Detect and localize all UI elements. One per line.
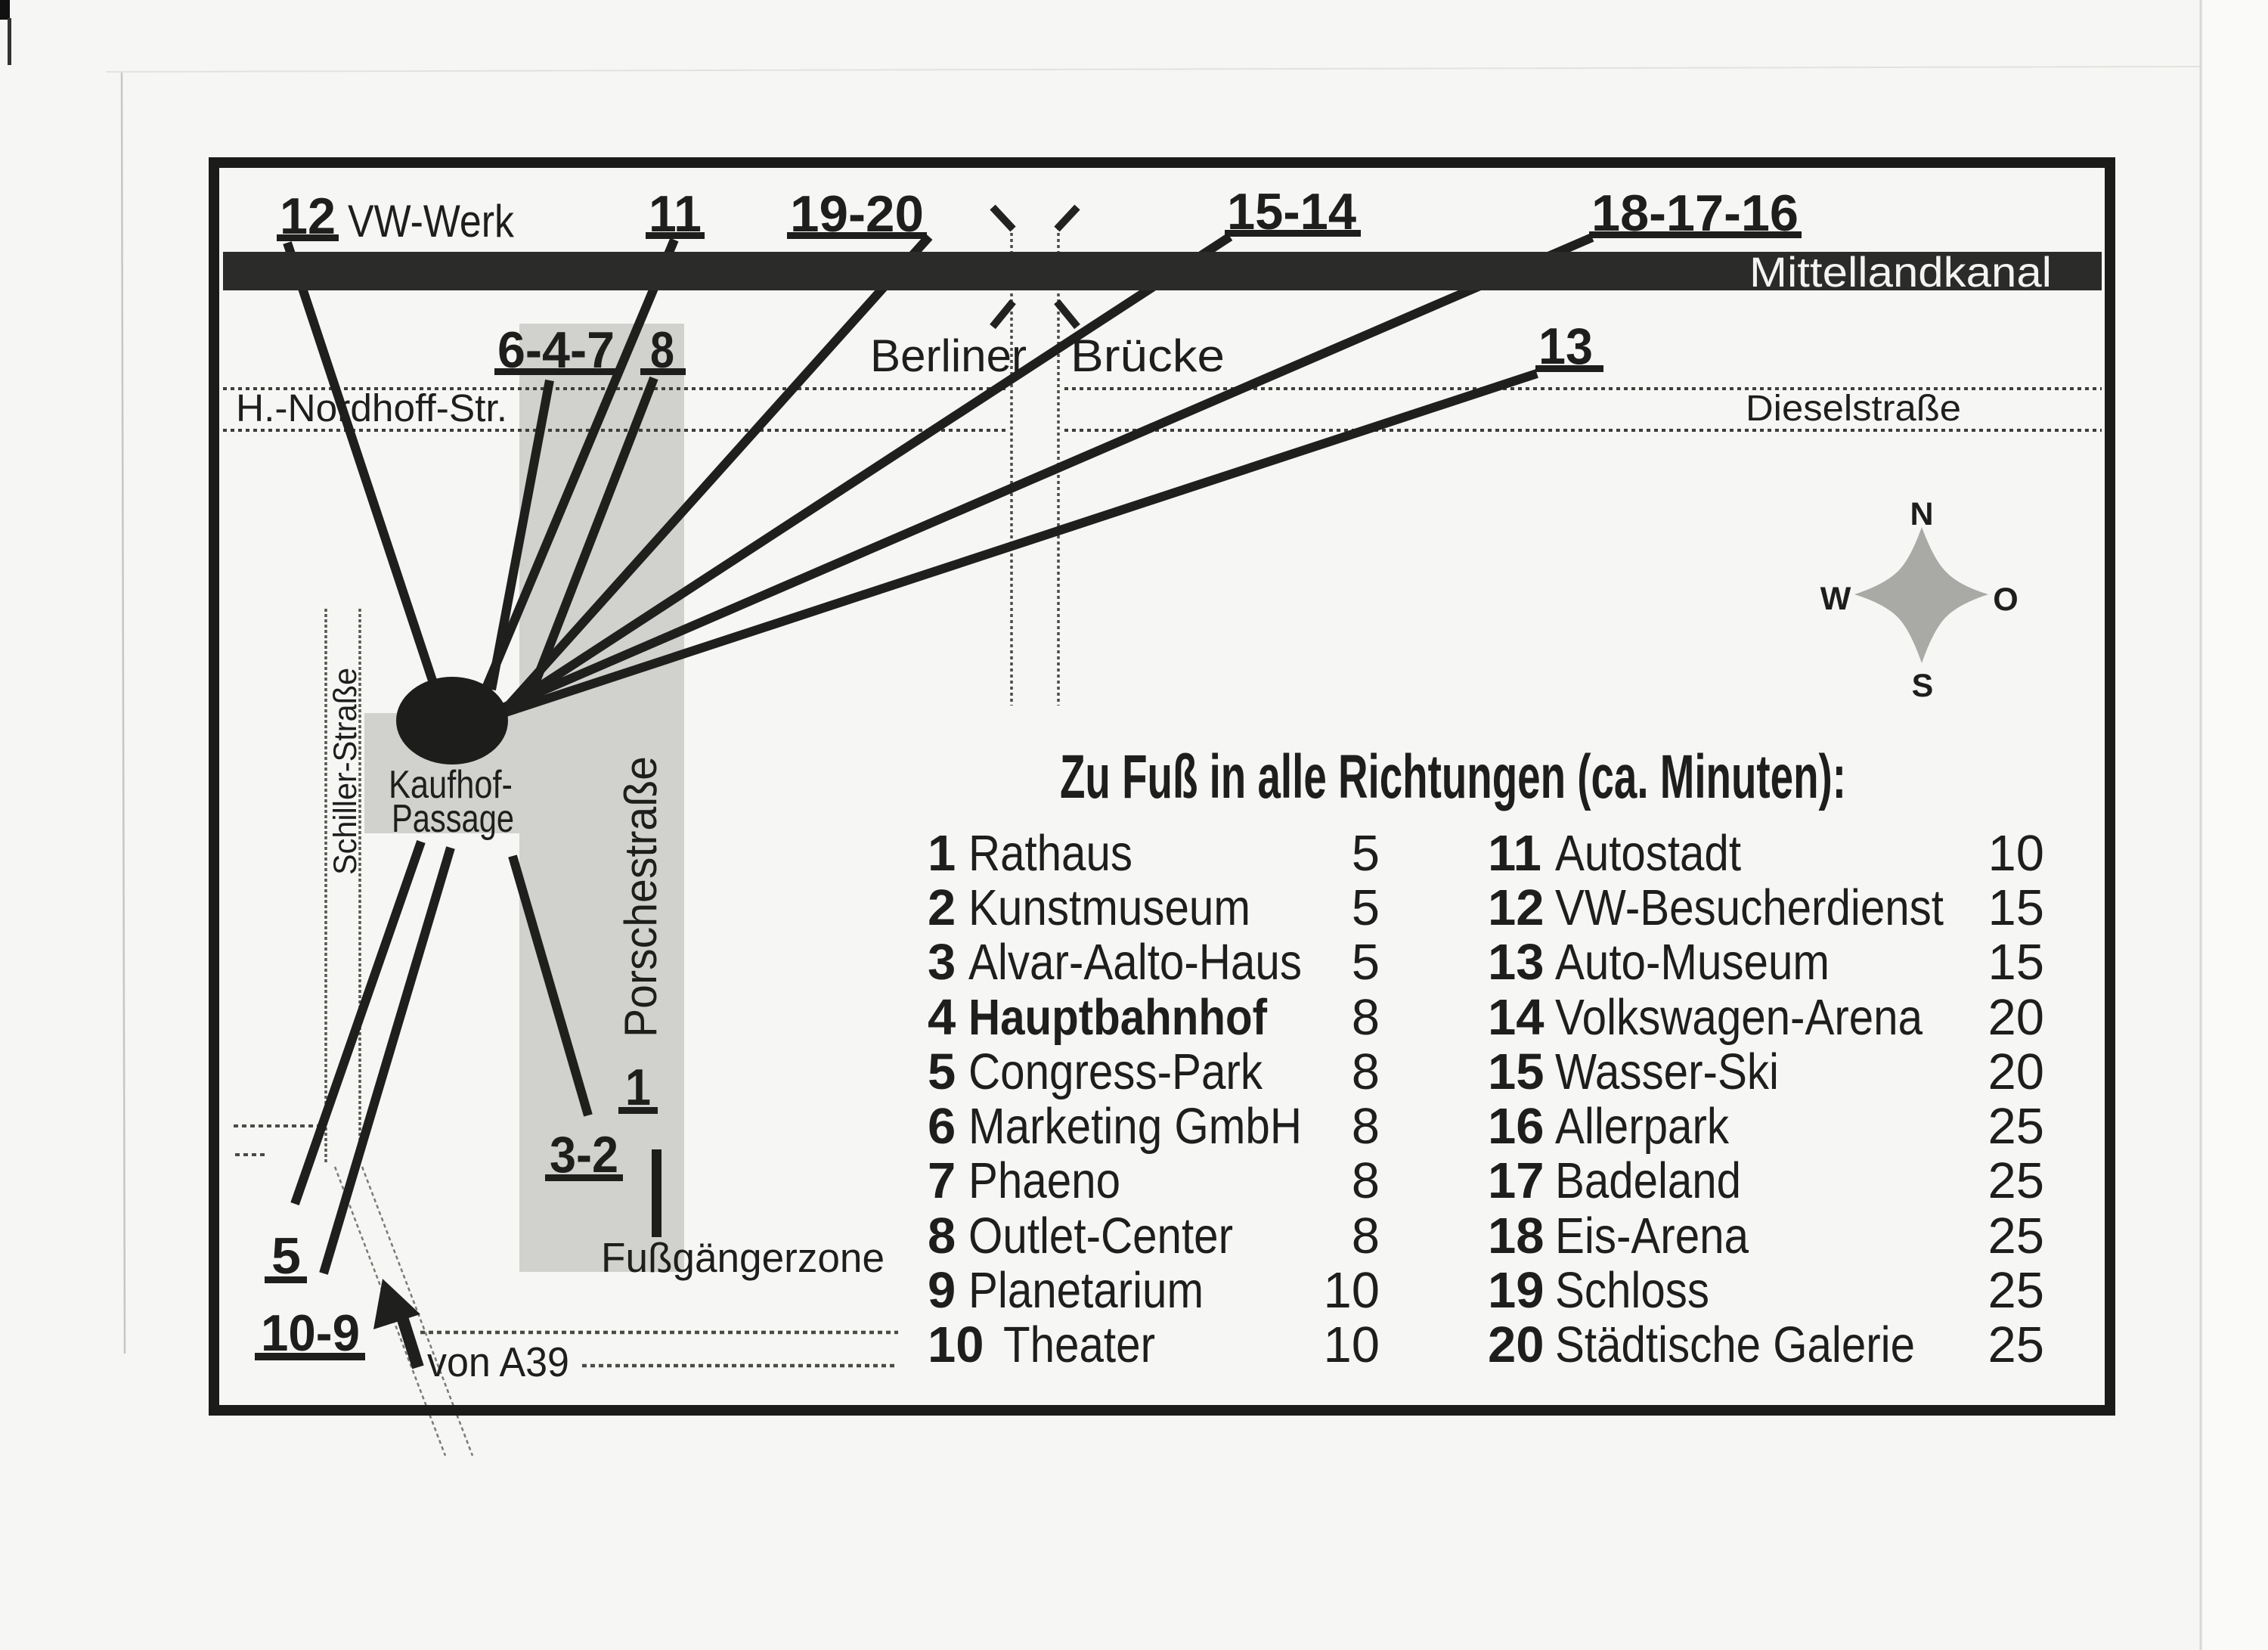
svg-text:15: 15 [1488,1044,1545,1100]
svg-text:5: 5 [1352,879,1380,936]
svg-text:12: 12 [1488,879,1545,936]
svg-text:5: 5 [1352,934,1380,991]
svg-text:Congress-Park: Congress-Park [968,1044,1263,1100]
svg-text:18: 18 [1488,1208,1545,1264]
svg-text:Badeland: Badeland [1555,1152,1741,1209]
svg-text:Schiller-Straße: Schiller-Straße [327,668,364,875]
svg-text:W: W [1820,581,1851,617]
svg-text:von A39: von A39 [427,1338,569,1385]
svg-text:20: 20 [1988,989,2044,1046]
svg-text:8: 8 [1352,1098,1380,1155]
svg-text:6: 6 [928,1098,956,1155]
svg-text:S: S [1912,668,1934,704]
svg-text:Porschestraße: Porschestraße [615,756,666,1037]
svg-text:5: 5 [271,1227,301,1285]
svg-text:10: 10 [1323,1317,1380,1373]
svg-text:Berliner: Berliner [870,330,1027,381]
svg-text:9: 9 [928,1262,956,1319]
svg-text:11: 11 [1488,825,1541,882]
svg-text:Volkswagen-Arena: Volkswagen-Arena [1555,989,1923,1046]
svg-text:17: 17 [1488,1152,1545,1209]
svg-text:20: 20 [1988,1044,2044,1100]
svg-text:1: 1 [928,825,956,882]
svg-text:7: 7 [928,1152,956,1209]
svg-text:10: 10 [1323,1262,1380,1319]
svg-text:15: 15 [1988,934,2044,991]
svg-text:Planetarium: Planetarium [968,1262,1204,1319]
svg-text:Städtische Galerie: Städtische Galerie [1555,1317,1915,1373]
svg-text:Allerpark: Allerpark [1555,1098,1729,1155]
svg-text:Schloss: Schloss [1555,1262,1709,1319]
svg-text:5: 5 [1352,825,1380,882]
svg-text:Rathaus: Rathaus [968,825,1132,882]
svg-text:8: 8 [1352,989,1380,1046]
svg-text:Theater: Theater [1003,1317,1155,1373]
svg-text:2: 2 [928,879,956,936]
svg-text:25: 25 [1988,1317,2044,1373]
svg-text:Outlet-Center: Outlet-Center [968,1208,1233,1264]
svg-text:Alvar-Aalto-Haus: Alvar-Aalto-Haus [968,934,1302,991]
svg-text:25: 25 [1988,1208,2044,1264]
svg-text:Phaeno: Phaeno [968,1152,1120,1209]
svg-text:Marketing GmbH: Marketing GmbH [968,1098,1302,1155]
svg-text:25: 25 [1988,1262,2044,1319]
svg-text:Zu Fuß in alle Richtungen (ca.: Zu Fuß in alle Richtungen (ca. Minuten): [1060,743,1846,811]
svg-text:Hauptbahnhof: Hauptbahnhof [968,989,1268,1046]
svg-text:Wasser-Ski: Wasser-Ski [1555,1044,1779,1100]
svg-text:8: 8 [1352,1152,1380,1209]
svg-text:10: 10 [928,1317,984,1373]
svg-text:4: 4 [928,989,956,1046]
svg-text:3: 3 [928,934,956,991]
svg-text:Dieselstraße: Dieselstraße [1746,389,1961,429]
svg-text:Autostadt: Autostadt [1555,825,1741,882]
svg-text:Passage: Passage [392,797,514,841]
svg-text:VW-Besucherdienst: VW-Besucherdienst [1555,879,1944,936]
svg-text:O: O [1993,582,2018,618]
svg-text:25: 25 [1988,1152,2044,1209]
svg-text:19: 19 [1488,1262,1545,1319]
svg-text:Fußgängerzone: Fußgängerzone [601,1234,885,1281]
svg-text:8: 8 [1352,1044,1380,1100]
svg-text:N: N [1910,496,1933,532]
svg-text:Kunstmuseum: Kunstmuseum [968,879,1250,936]
svg-text:10: 10 [1988,825,2044,882]
svg-text:25: 25 [1988,1098,2044,1155]
svg-text:14: 14 [1488,989,1545,1046]
svg-text:5: 5 [928,1044,956,1100]
svg-text:13: 13 [1488,934,1545,991]
svg-text:16: 16 [1488,1098,1545,1155]
svg-text:VW-Werk: VW-Werk [348,196,515,247]
svg-text:8: 8 [1352,1208,1380,1264]
svg-text:Eis-Arena: Eis-Arena [1555,1208,1749,1264]
svg-text:15: 15 [1988,879,2044,936]
svg-text:Auto-Museum: Auto-Museum [1555,934,1830,991]
svg-text:Brücke: Brücke [1070,330,1225,381]
svg-text:20: 20 [1488,1317,1545,1373]
svg-text:8: 8 [928,1208,956,1264]
svg-text:H.-Nordhoff-Str.: H.-Nordhoff-Str. [236,386,507,430]
svg-text:Mittellandkanal: Mittellandkanal [1749,248,2052,296]
